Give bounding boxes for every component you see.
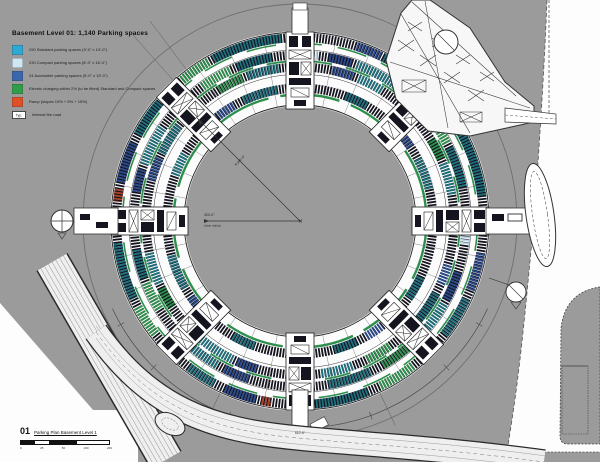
legend-title: Basement Level 01: 1,140 Parking spaces — [12, 30, 155, 37]
legend-label: Internal fire road — [32, 112, 61, 117]
core-north — [286, 32, 314, 109]
core-east — [111, 207, 188, 235]
core-west — [412, 207, 489, 235]
scale-bar — [20, 440, 110, 445]
legend-label: 24 Accessible parking spaces (9'-0" x 19… — [29, 73, 108, 78]
scale-labels: 0 25 50 100 200 — [20, 446, 112, 450]
legend-item: Typ. Internal fire road — [12, 108, 155, 121]
scale-segment — [77, 441, 109, 444]
accessible-parking-swatch-icon — [12, 71, 23, 81]
radius-sublabel: (clear radius) — [204, 224, 221, 228]
scale-tick: 50 — [62, 446, 65, 450]
radius-dimension-lines — [196, 117, 300, 221]
scale-tick: 100 — [84, 446, 89, 450]
north-stub-road — [292, 8, 308, 34]
southeast-parcel — [560, 287, 600, 444]
scale-segment — [21, 441, 35, 444]
legend: Basement Level 01: 1,140 Parking spaces … — [12, 30, 155, 121]
ramp-swatch-icon — [12, 97, 23, 107]
title-block: 01 Parking Plan Basement Level 1 0 25 50… — [20, 426, 140, 450]
west-stub-car — [96, 222, 108, 228]
sheet-title: Parking Plan Basement Level 1 — [34, 430, 97, 435]
standard-parking-swatch-icon — [12, 45, 23, 55]
legend-item: 24 Accessible parking spaces (9'-0" x 19… — [12, 69, 155, 82]
legend-item: Ramp (slopes 15% + 5% + 15%) — [12, 95, 155, 108]
east-stub-car-outline — [508, 214, 522, 221]
west-marker-triangle — [58, 233, 66, 239]
scale-tick: 25 — [40, 446, 43, 450]
compact-parking-swatch-icon — [12, 58, 23, 68]
site-plan-canvas: 324'-0" (clear radius) R 380'-0" 610'-0"… — [0, 0, 600, 462]
west-stub-road — [74, 208, 118, 234]
legend-item: 230 Compact parking spaces (8'-0" x 16'-… — [12, 56, 155, 69]
scale-tick: 200 — [107, 446, 112, 450]
scale-tick: 0 — [20, 446, 22, 450]
svg-text:Typ.: Typ. — [16, 113, 22, 117]
scale-segment — [49, 441, 77, 444]
dimension-tick — [117, 323, 124, 327]
legend-item: 290 Standard parking spaces (9'-0" x 19'… — [12, 43, 155, 56]
arc-dimension-label: 610'-0" — [295, 431, 305, 435]
tree-marker-triangle — [511, 302, 521, 309]
scale-segment — [35, 441, 49, 444]
legend-label: Ramp (slopes 15% + 5% + 15%) — [29, 99, 87, 104]
west-stub-car — [80, 214, 90, 220]
legend-item: Electric charging within 2% (to be fitte… — [12, 82, 155, 95]
legend-label: Electric charging within 2% (to be fitte… — [29, 86, 155, 91]
east-stub-car — [492, 214, 504, 221]
electric-charging-swatch-icon — [12, 84, 23, 94]
radius-label: 324'-0" — [204, 213, 215, 217]
legend-label: 230 Compact parking spaces (8'-0" x 16'-… — [29, 60, 107, 65]
sheet-number: 01 — [20, 426, 30, 436]
fire-road-swatch-icon: Typ. — [12, 111, 26, 119]
dimension-tick — [476, 323, 483, 327]
north-stub-pad — [293, 3, 307, 10]
legend-label: 290 Standard parking spaces (9'-0" x 19'… — [29, 47, 107, 52]
